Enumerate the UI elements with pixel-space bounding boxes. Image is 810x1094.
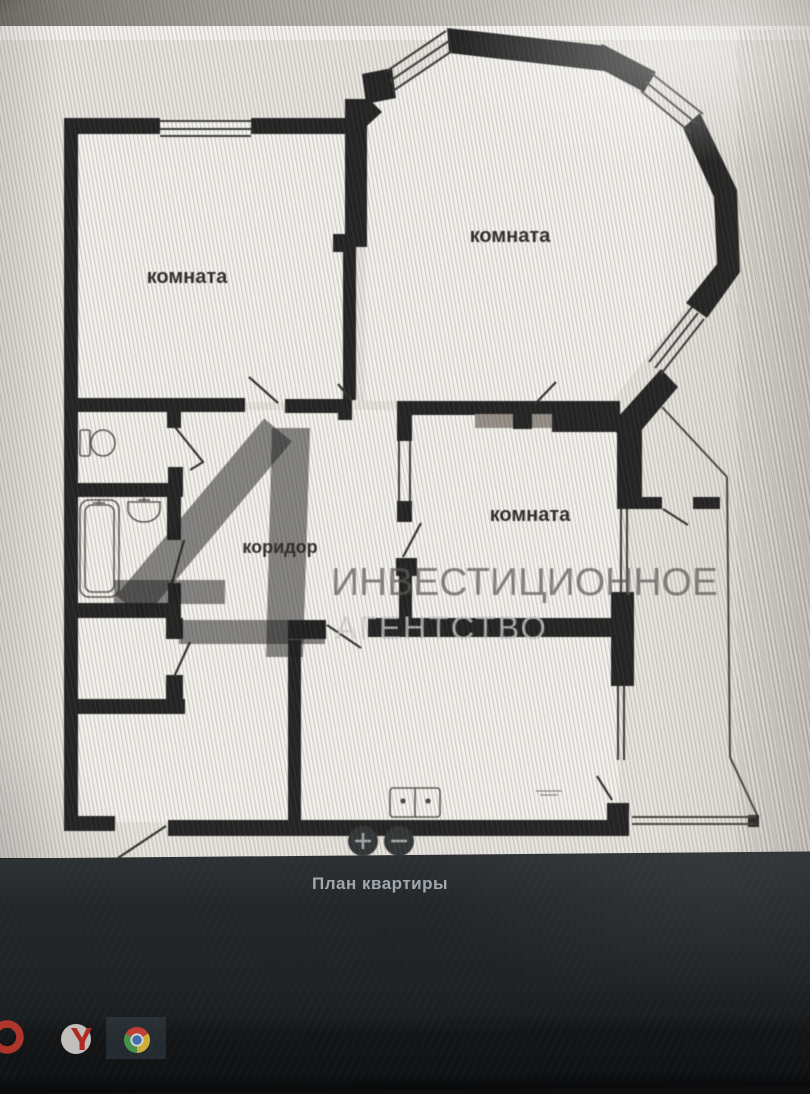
svg-text:ИНВЕСТИЦИОННОЕ: ИНВЕСТИЦИОННОЕ <box>331 561 718 604</box>
svg-text:комната: комната <box>147 266 228 288</box>
svg-text:комната: комната <box>470 225 551 247</box>
svg-text:комната: комната <box>490 504 571 526</box>
svg-text:АГЕНТСТВО: АГЕНТСТВО <box>335 610 548 646</box>
svg-text:коридор: коридор <box>242 537 317 557</box>
